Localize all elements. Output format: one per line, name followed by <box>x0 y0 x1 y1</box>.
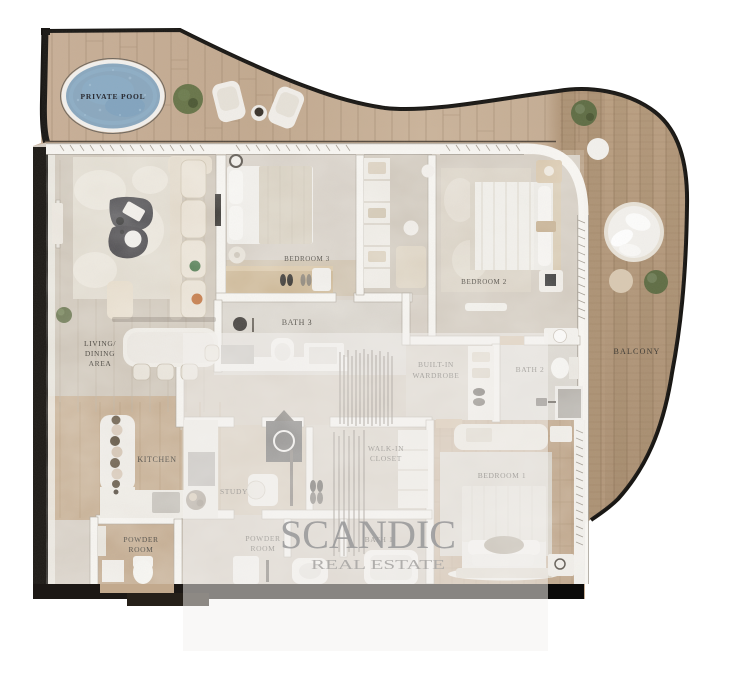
svg-text:REAL ESTATE: REAL ESTATE <box>311 557 445 572</box>
svg-text:SCANDIC: SCANDIC <box>280 512 456 557</box>
